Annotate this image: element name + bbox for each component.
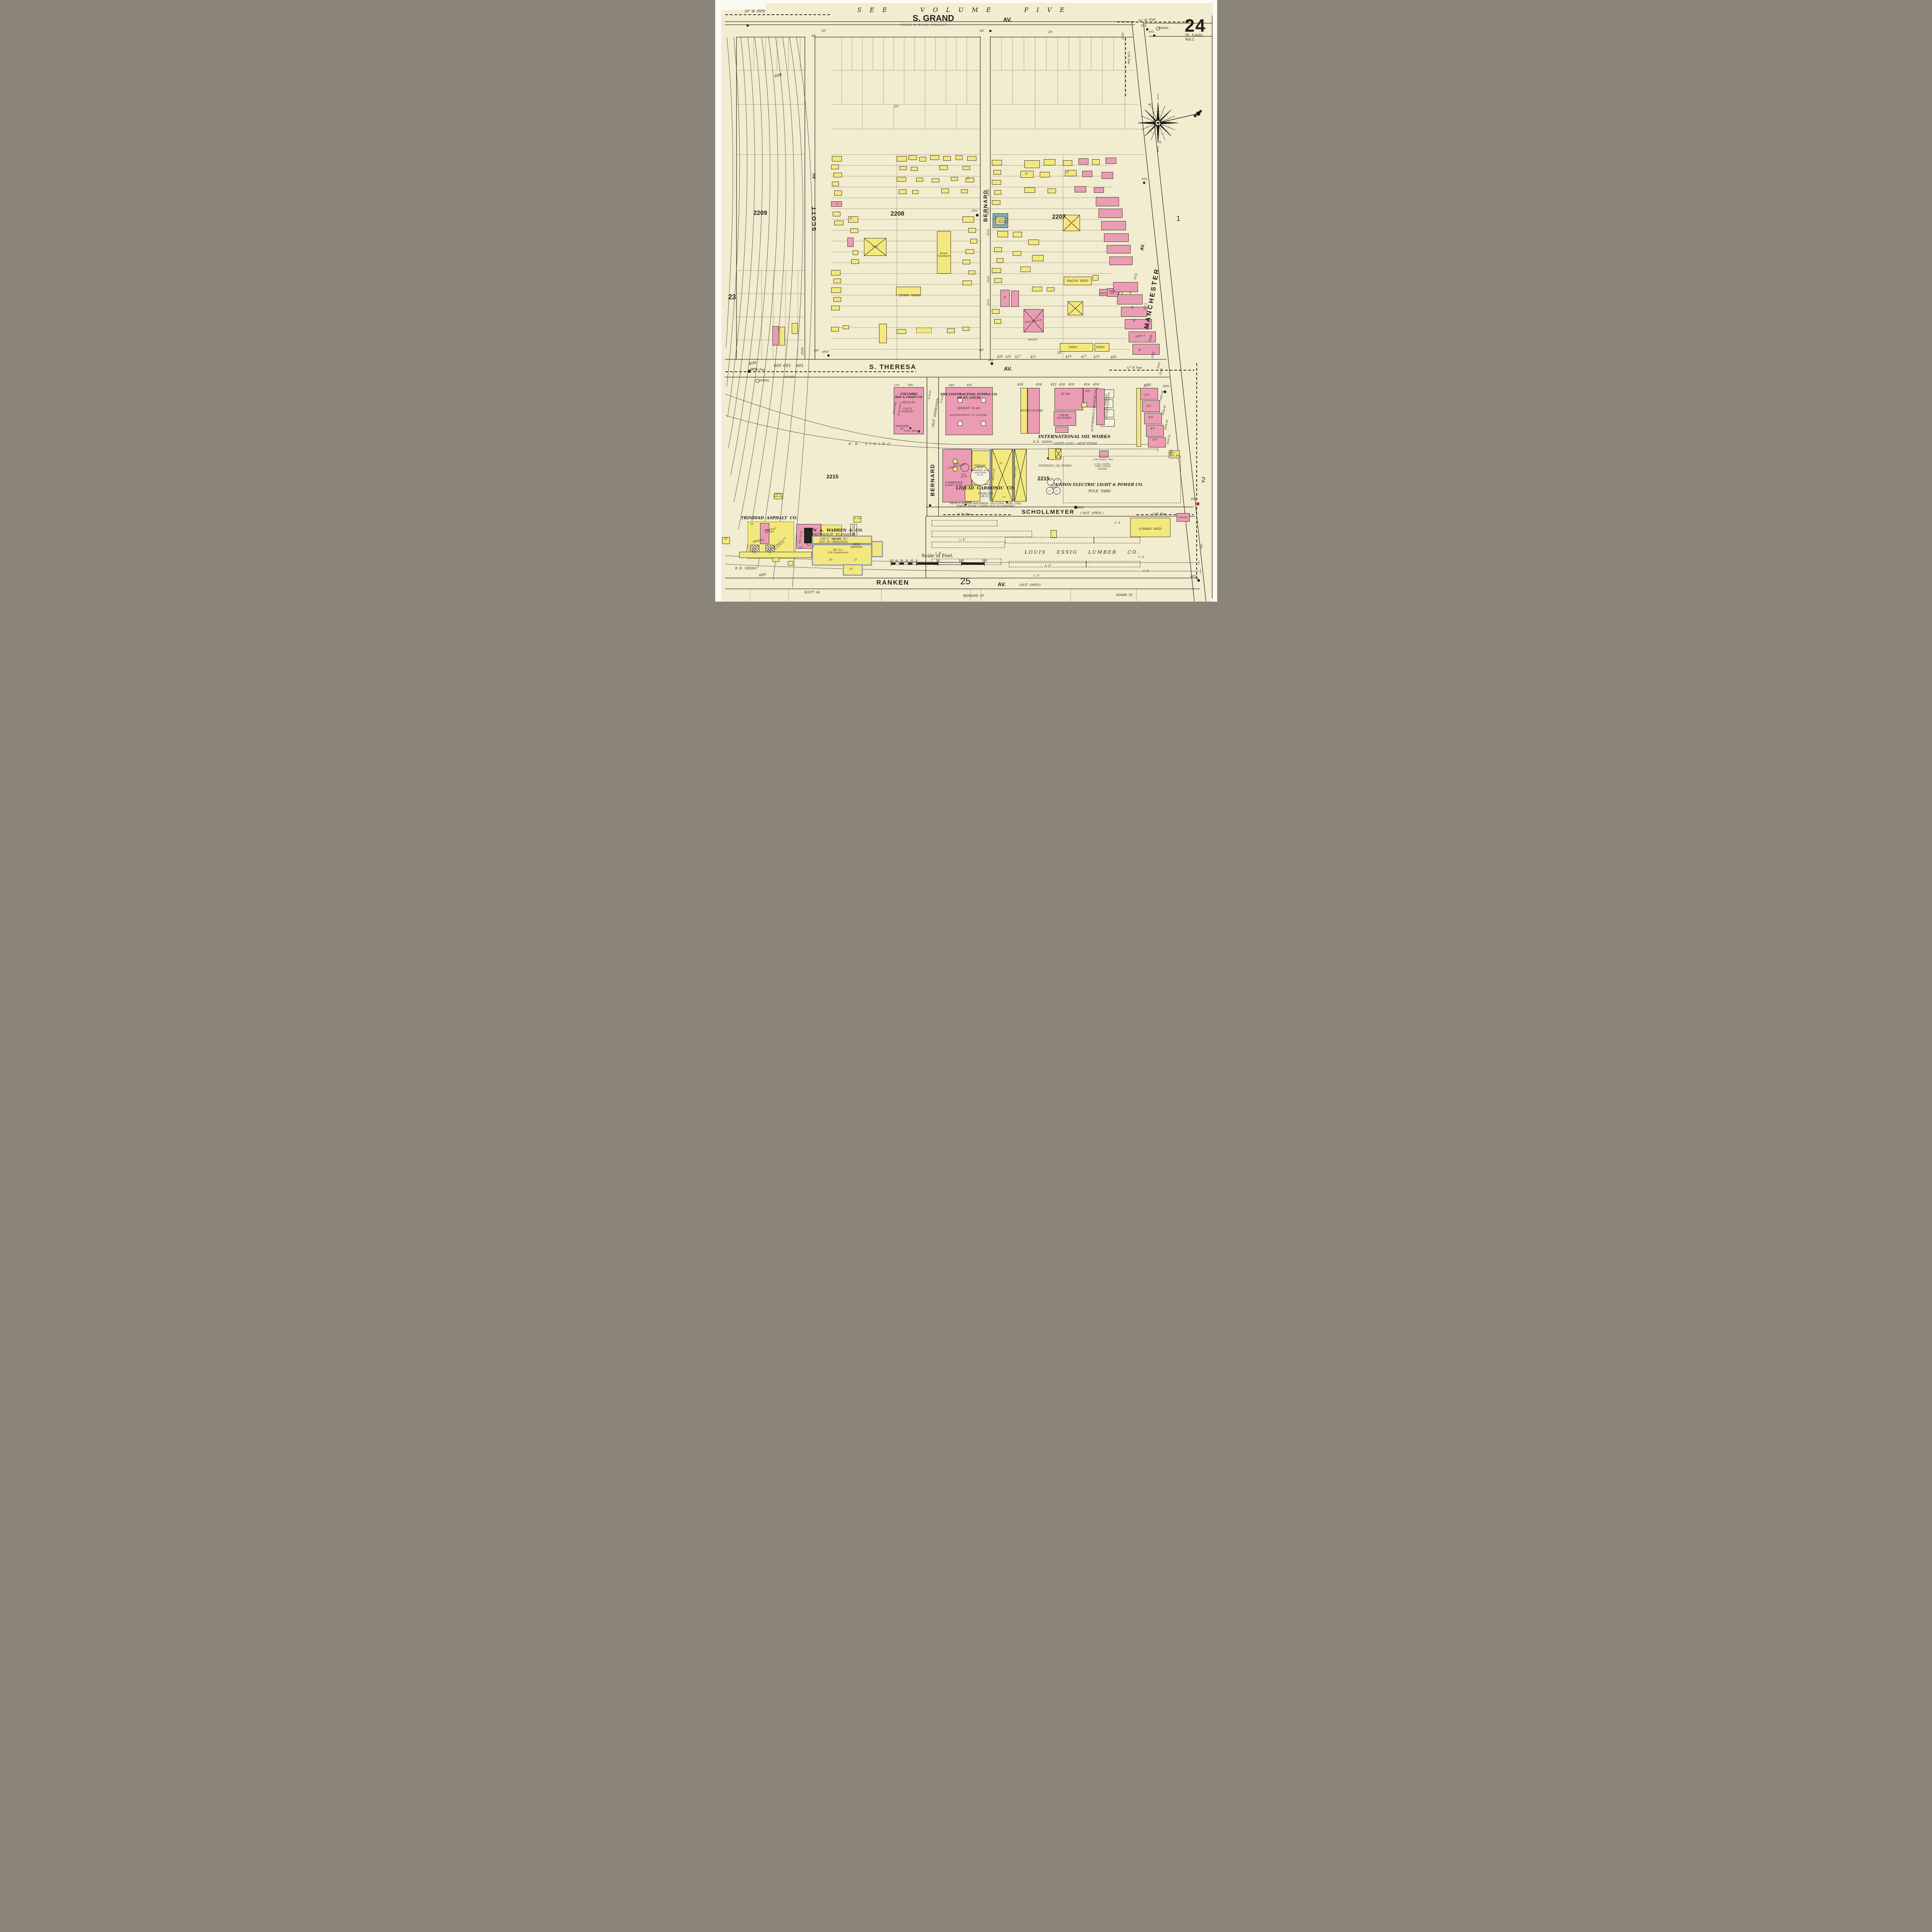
columbia-hay: HAY W. HO.: [902, 402, 916, 405]
shed-east: SHED: [1096, 346, 1105, 349]
building: [1082, 403, 1087, 407]
building: [992, 268, 1001, 273]
gas-tank-label: 50000 GAL. IRON CARBONIC ACID GAS TANK 3…: [971, 464, 990, 477]
ranken-not-open: (NOT OPEN): [1019, 583, 1041, 587]
building: [963, 327, 969, 331]
num-510: 510: [894, 384, 899, 387]
warren-sub: EXCHANGE ELEVATOR: [812, 533, 855, 537]
building: [963, 216, 974, 223]
compass-rose: [1138, 94, 1202, 152]
building: [833, 173, 842, 177]
steam-pumps: STEAM OIL PUMPS: [1057, 415, 1071, 420]
building: [772, 326, 779, 345]
sp-label: S.P.: [1176, 454, 1180, 457]
building: [853, 250, 858, 255]
building: [1024, 160, 1040, 168]
union-title: UNION ELECTRIC LIGHT & POWER CO.: [1056, 483, 1143, 487]
intl-oil-lights: LIGHTS: ELEC. ~HEAT STEAM: [1053, 442, 1097, 445]
rr-siding-east: R. R. SIDING: [1033, 440, 1052, 444]
building: [911, 167, 918, 171]
num-420: 420: [1059, 383, 1065, 386]
building: [1102, 172, 1113, 179]
columbia-title: COLUMBIA HAY & GRAIN CO.: [895, 393, 923, 399]
building: [831, 306, 840, 310]
patrol-ne: PATROL: [1158, 27, 1169, 30]
building: [956, 155, 963, 160]
street-s-theresa-av: AV.: [1004, 366, 1012, 372]
off-tool: OFF. & TOOL HO.: [773, 493, 783, 498]
block-2215-west: 2215: [827, 473, 838, 480]
building: [1054, 388, 1083, 410]
junk-yard: JUNK YARD: [900, 294, 921, 297]
building: [994, 190, 1001, 195]
oven: OVEN: [1100, 293, 1106, 295]
scale-n-40: 40: [895, 560, 898, 563]
block-1: 1: [1176, 215, 1180, 223]
building: [1032, 287, 1042, 291]
hydrant-dot: [827, 354, 830, 357]
cement-who: CEMENT W. HO.: [957, 407, 981, 410]
building: [981, 421, 986, 426]
gw-pipe-se: G.W. Pipe: [1153, 512, 1166, 515]
building: [1094, 187, 1104, 193]
building: [1055, 427, 1068, 433]
num-3523: 3523: [986, 276, 990, 283]
private: PRIVATE: [1028, 339, 1037, 341]
iron-heaters: IRON HEATERS: [850, 544, 862, 549]
building: [1011, 291, 1019, 307]
pipe-12-east: 12" W. Pipe: [1126, 366, 1142, 369]
num-601: 601: [796, 364, 804, 368]
hydrant-dot: [1143, 182, 1145, 184]
building: [1094, 537, 1140, 543]
building: [831, 327, 839, 332]
dim-16-trin: 16': [799, 547, 803, 550]
block-2208: 2208: [891, 211, 905, 218]
dim-60-s-theresa: 60': [814, 349, 819, 352]
building: [1063, 456, 1181, 503]
building: [812, 544, 872, 566]
rr-siding-bottom: R. R. SIDING: [735, 566, 757, 570]
building: [1075, 186, 1086, 192]
building: [1005, 537, 1094, 543]
bldg-d-1: D: [1131, 306, 1133, 309]
building: [1020, 267, 1031, 272]
dim-45: 45': [829, 559, 833, 562]
volume-note: St. Louis, Vol.I.: [1185, 33, 1206, 42]
hyd-se-2: HYD.: [1190, 575, 1197, 578]
building: [1109, 257, 1133, 265]
f-row-1: F: [837, 202, 838, 206]
hydrant-dot: [929, 504, 931, 507]
columbia-motor: ELEC. MOTOR: [904, 430, 920, 432]
hyd-se-1: HYD.: [1190, 498, 1197, 501]
building: [843, 325, 849, 329]
sp-2: S.P.: [1002, 497, 1006, 499]
building: [879, 324, 887, 343]
building: [1028, 240, 1039, 245]
building: [739, 552, 812, 558]
building: [993, 170, 1001, 175]
building: [994, 319, 1001, 324]
num-605: 605: [774, 364, 781, 368]
building: [848, 216, 858, 223]
building: [997, 231, 1008, 237]
block-2207: 2207: [1052, 214, 1066, 221]
crib: (IR. CL.) Crib Construction: [827, 549, 849, 554]
building: [992, 180, 1001, 185]
building: [897, 156, 907, 162]
watchman-note: NIGHT & SUNDAY WATCHMAN - NO CLOCK - FUE…: [950, 503, 1021, 508]
building: [932, 542, 1005, 548]
patrol-west: PATROL: [759, 379, 770, 383]
street-s-grand-av: AV.: [1003, 16, 1012, 23]
sheet-number: 24: [1185, 15, 1206, 36]
l8-c: L. 8': [1139, 556, 1145, 559]
bake-ho: BAKE HO.: [1109, 290, 1115, 295]
building: [1105, 158, 1116, 164]
building: [1117, 294, 1143, 304]
street-scott-av: AV.: [812, 173, 817, 179]
bldg-f-stone: F: [995, 217, 997, 220]
dim-60-bernard-s: 60': [979, 348, 984, 352]
building: [916, 178, 923, 182]
building: [899, 189, 906, 194]
l6-a: L. 6': [1143, 570, 1149, 573]
building: [831, 270, 840, 276]
tank-18-b: 18': [1056, 480, 1060, 482]
tank-18-a: 18': [1049, 480, 1053, 482]
warren-not-op: NOT IN OPERATION.: [819, 541, 848, 543]
trinidad-title: TRINIDAD ASPHALT CO.: [741, 516, 797, 520]
street-ranken-av: AV.: [998, 581, 1006, 587]
building: [1068, 301, 1083, 315]
hyd-s-theresa-m: HYD.: [988, 360, 994, 362]
dim-20-sw: 20': [724, 538, 728, 541]
tank-circle: [807, 543, 810, 546]
building: [850, 228, 858, 233]
l8-b: L. 8': [1045, 564, 1051, 567]
d-row-3: D: [850, 217, 852, 220]
building: [1082, 171, 1092, 177]
building: [947, 328, 955, 333]
building: [834, 190, 842, 196]
scale-n-50l: 50: [890, 559, 893, 562]
num-603: 603: [783, 364, 791, 368]
d-row-2: D: [1066, 171, 1069, 174]
building: [847, 238, 854, 247]
eng-20: ENG. 20 HP: [961, 474, 967, 479]
liquid-title: LIQUID CARBONIC CO.: [956, 486, 1015, 491]
building: [1051, 530, 1057, 538]
building: [1078, 158, 1088, 165]
street-scott-av-bottom: SCOTT AV.: [804, 590, 821, 594]
hydrant-dot: [1196, 502, 1199, 506]
store-rm: STORE R'M (IR CL.): [978, 493, 993, 498]
building: [833, 297, 841, 302]
intl-oil-2: INTERNAT'L OIL WORKS: [1039, 464, 1071, 467]
building: [1101, 221, 1126, 230]
building: [1040, 172, 1050, 177]
hyd-609: HYD.: [750, 368, 757, 371]
scales-s-theresa: SCALES: [785, 376, 795, 379]
num-424: 424: [1036, 383, 1042, 386]
building: [932, 520, 997, 526]
num-436: 436: [967, 384, 972, 387]
gasol-tank: 2 GAL. GASOL. TANK UNDER ENGINE: [1094, 463, 1111, 471]
hydrant-dot: [989, 30, 992, 32]
building: [834, 221, 844, 225]
building: [1140, 388, 1158, 400]
building: [963, 166, 970, 170]
stone-bldg-note: STONE 1ST BRICK 2D FRAME 3D: [997, 218, 1008, 224]
building: [968, 270, 975, 274]
num-444: 444: [949, 384, 954, 387]
tank-18-c: 18': [1055, 490, 1058, 493]
num-414: 414: [1093, 383, 1099, 386]
bl-sh: B.L. SH.: [853, 518, 861, 520]
hyd-s-theresa-w: HYD: [822, 350, 828, 354]
scale-n-0: 0: [915, 559, 917, 562]
hydrant-dot: [1153, 34, 1155, 37]
building: [1063, 160, 1072, 166]
building: [851, 259, 859, 264]
num-3521: 3521: [986, 299, 990, 306]
f-row-2: F: [1004, 296, 1006, 299]
compressor: COMPRESSOR & ENG. 50 HP.: [945, 482, 963, 487]
street-bernard-lower: BERNARD: [929, 464, 935, 496]
building: [1146, 425, 1164, 437]
building: [1032, 255, 1044, 261]
hydrant-dot: [990, 362, 993, 365]
street-bernard-st-bottom: BERNARD ST.: [963, 594, 985, 597]
pipe-30-left: 30" W. PIPE: [744, 10, 765, 14]
building: [992, 160, 1002, 165]
street-schollmeyer: SCHOLLMEYER: [1022, 509, 1075, 515]
schollmeyer-not-open: ( NOT OPEN ): [1080, 511, 1103, 515]
ruins-of-fire: RUINS OF FIRE: [1021, 409, 1043, 412]
building: [958, 421, 963, 426]
building: [832, 182, 839, 186]
building: [1055, 449, 1061, 458]
l8-a: L. 8': [959, 538, 965, 541]
bldg-s-2: S': [1133, 319, 1136, 322]
columbia-capacity: CAP'CY 10,000 BU.: [901, 408, 914, 413]
building: [967, 156, 976, 161]
building: [1099, 209, 1122, 218]
f-row-3: F: [967, 177, 969, 180]
viaduct-note: S T E E L & W O O D V I A D U C T: [901, 24, 946, 27]
lumber-shed: LUMBER SHED: [1139, 527, 1162, 531]
building: [831, 165, 839, 169]
off-label: OFF.: [1085, 391, 1090, 393]
building: [1013, 251, 1021, 256]
building: [992, 200, 1000, 205]
num-3500-scott: 3500: [801, 347, 804, 355]
building: [966, 178, 974, 182]
building: [1047, 287, 1054, 291]
dim-22: 22': [811, 546, 815, 549]
num-3525: 3525: [986, 229, 990, 236]
street-s-theresa: S. THERESA: [869, 363, 916, 371]
building: [832, 156, 842, 162]
l8-d: L. 8': [935, 552, 941, 555]
building: [951, 177, 958, 181]
street-scott: SCOTT: [811, 206, 817, 231]
street-ranken: RANKEN: [876, 579, 909, 587]
num-418: 418: [1068, 383, 1074, 386]
gasol-eng: 2 HP GASOL. ENG.: [1093, 459, 1114, 461]
hydrant-dot: [1146, 28, 1148, 31]
block-2215-east: 2215: [1037, 475, 1049, 481]
building: [916, 328, 932, 333]
hyd-ne-1: HYD.: [1141, 25, 1147, 28]
num-3535: 3535: [986, 189, 990, 196]
building: [1107, 245, 1131, 253]
dim-16-mill: 16': [750, 524, 754, 526]
building: [963, 260, 970, 264]
hyd-manchester-mid: HYD.: [1142, 179, 1148, 181]
building: [992, 309, 1000, 314]
building: [1096, 389, 1105, 425]
building: [897, 177, 906, 182]
building: [919, 157, 926, 162]
building: [831, 287, 841, 293]
dim-20-mid: 20': [894, 104, 899, 108]
ir-cl-1: (IR. CL.): [832, 538, 842, 541]
dim-20-s-theresa: 20': [1057, 351, 1062, 354]
building: [1104, 233, 1129, 242]
hyd-bernard: HYD.: [972, 210, 978, 213]
num-422: 422: [1051, 383, 1056, 386]
hydrant-dot: [1197, 579, 1200, 582]
warren-title: JOHN A. WARREN & CO.: [804, 528, 863, 533]
building: [932, 179, 939, 182]
street-adams-st-bottom: ADAMS ST.: [1116, 593, 1133, 597]
building: [994, 247, 1002, 252]
block-2209: 2209: [753, 210, 767, 217]
dim-60-scott-top: 60': [811, 34, 816, 37]
num-3050: 3050: [1121, 32, 1124, 39]
dim-20-right-top: 20': [1048, 30, 1053, 34]
dim-50-top: 50': [821, 29, 826, 32]
building: [930, 155, 939, 160]
building: [963, 281, 972, 285]
building: [939, 165, 948, 170]
d-row-1: D: [1026, 172, 1028, 175]
building: [897, 329, 906, 334]
building: [932, 531, 1032, 537]
block-23: 23: [728, 293, 736, 301]
building: [970, 239, 977, 243]
building: [994, 278, 1002, 283]
building: [932, 559, 1001, 565]
shed-west: SHED: [1069, 346, 1077, 349]
dim-15-warren: 15': [854, 559, 857, 562]
building: [943, 156, 951, 161]
pipe-6-schollmeyer: 6" W. Pipe: [957, 513, 971, 516]
rr-siding-west: R. R. S I D I N G: [849, 442, 891, 446]
block-25: 25: [960, 576, 971, 587]
building: [792, 323, 798, 334]
building: [779, 327, 785, 345]
building: [961, 189, 968, 193]
building: [1013, 232, 1022, 237]
num-416: 416: [1084, 383, 1090, 386]
building: [1044, 159, 1055, 165]
building: [968, 228, 976, 233]
bldg-s-1: S': [1129, 291, 1132, 295]
building: [1133, 344, 1160, 355]
hyd-schollmeyer: HYD.: [1077, 506, 1084, 509]
building: [1092, 275, 1099, 281]
building: [1092, 159, 1100, 165]
intl-oil-title: INTERNATIONAL OIL WORKS: [1038, 435, 1111, 440]
building: [1086, 561, 1140, 567]
scale-n-150: 150: [982, 559, 987, 562]
scale-n-50r: 50: [936, 559, 940, 562]
negro-tenement: Negro Tenement: [937, 252, 950, 258]
dim-16-warren: 16': [849, 568, 853, 571]
street-manchester-av: AV.: [1139, 243, 1146, 251]
num-500: 500: [908, 384, 913, 387]
scale-n-10: 10: [910, 560, 913, 563]
block-2: 2: [1201, 476, 1205, 484]
sand-dryer: SAND DRYER: [752, 546, 757, 554]
hyd-ne-2: HYD.: [1149, 31, 1155, 34]
building: [1048, 189, 1056, 193]
hydrant-dot: [909, 427, 911, 429]
tank-circle: [755, 379, 759, 383]
building: [997, 258, 1003, 263]
gw-pipe-ne: G.W. Pipe: [1127, 51, 1130, 65]
wagon-shed: WAGON SHED: [1067, 279, 1088, 282]
scale-n-30: 30: [900, 560, 903, 563]
feed-ho: FEED HO: [1169, 452, 1175, 456]
building: [899, 166, 907, 170]
num-3533: 3533: [986, 207, 990, 214]
num-426: 426: [1017, 383, 1023, 386]
office-essig: OFFICE: [1179, 517, 1187, 519]
dim-20-clad: 20': [999, 463, 1003, 465]
building: [833, 279, 841, 283]
building: [1024, 187, 1035, 193]
building: [908, 155, 917, 160]
building: [788, 561, 793, 566]
bldg-f-1: F': [1139, 349, 1142, 352]
building: [1096, 197, 1119, 206]
building: [871, 541, 883, 557]
see-volume-five: S E E V O L U M E F I V E: [857, 7, 1068, 14]
scale-n-100: 100: [959, 559, 964, 562]
tank-15: 15': [1048, 490, 1051, 493]
building: [941, 189, 949, 193]
street-s-grand: S. GRAND: [913, 13, 954, 23]
building: [1113, 282, 1138, 292]
wood-posts: 8x8 WOOD POSTS ~16' CENTERS: [949, 414, 987, 417]
dim-60-se: 60': [1199, 543, 1204, 549]
essig-title: LOUIS ESSIG LUMBER CO.: [1025, 550, 1139, 555]
hydrant-dot: [976, 214, 978, 217]
building: [912, 190, 918, 194]
contracting-title: THE CONTRACTING SUPPLY CO. OF ST. LOUIS: [940, 393, 998, 400]
hydrant-dot: [747, 24, 749, 27]
who-label: W. HO.: [1061, 393, 1070, 396]
hydrant-dot: [1047, 457, 1049, 459]
building: [833, 212, 840, 216]
l6-b: L. 6': [1034, 574, 1039, 577]
hyd-400: HYD.: [1163, 385, 1170, 388]
